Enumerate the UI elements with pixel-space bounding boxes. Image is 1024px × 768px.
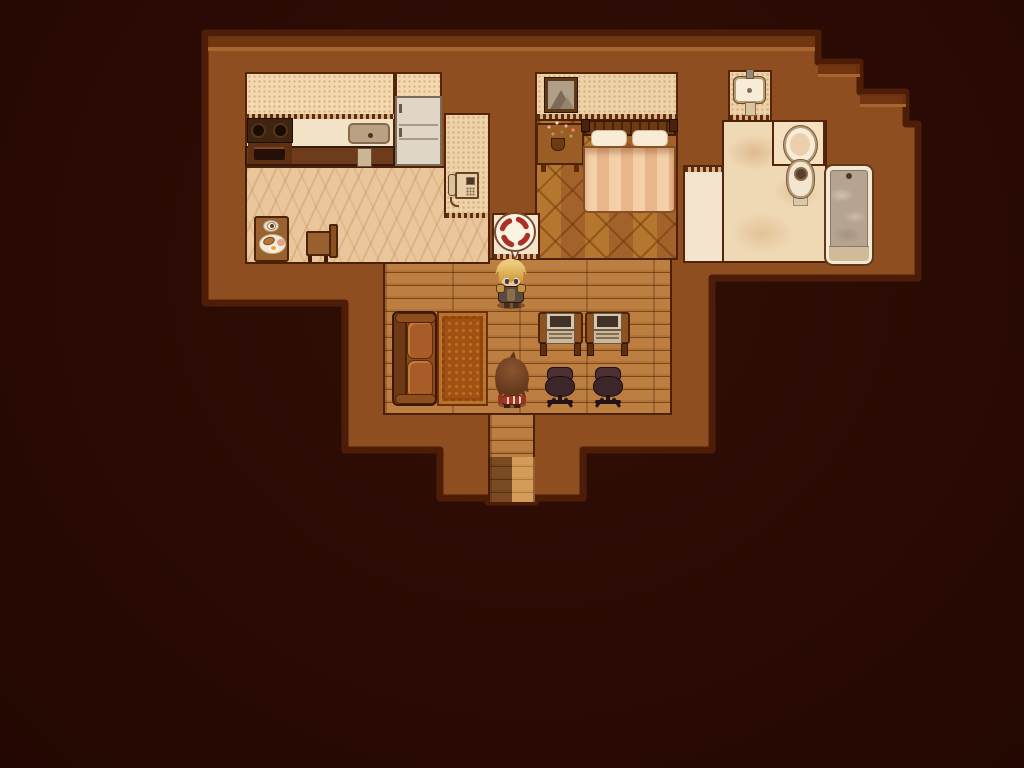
office-chair-right[interactable]: [591, 367, 625, 408]
toilet[interactable]: [787, 160, 814, 198]
hand-towel: [357, 148, 372, 167]
faucet-icon: [746, 69, 754, 79]
chair-leg: [308, 256, 312, 262]
nightstand-leg: [574, 165, 579, 172]
kid-arm: [521, 395, 526, 404]
toilet-base: [793, 197, 808, 206]
office-chair-left[interactable]: [543, 367, 577, 408]
laptop-screen: [593, 313, 622, 330]
intercom-phone[interactable]: [448, 172, 479, 208]
desk-leg: [621, 343, 628, 356]
hero-eye: [505, 278, 509, 284]
chair-seat: [545, 376, 575, 397]
fridge-seam: [399, 138, 438, 140]
toilet-lid-inner: [790, 133, 810, 156]
couch-cushion: [407, 360, 433, 398]
game-viewport: [0, 0, 1024, 768]
sink-pedestal: [745, 102, 756, 116]
hero-eye: [514, 278, 518, 284]
oven-door: [254, 147, 285, 160]
breakfast-table[interactable]: [254, 216, 289, 262]
couch-armrest: [395, 313, 436, 323]
couch[interactable]: [392, 311, 437, 406]
phone-screen: [466, 177, 475, 185]
coffee: [270, 224, 274, 228]
drain-icon: [368, 133, 373, 138]
flower-vase: [551, 138, 565, 151]
tub-faucet-icon: [846, 173, 852, 179]
laptop-right[interactable]: [593, 313, 622, 344]
bathtub[interactable]: [826, 166, 872, 264]
phone-cord: [450, 197, 459, 207]
kid-foot: [504, 404, 510, 408]
keyboard-keys-icon: [596, 333, 619, 341]
hero-shoulder-pad: [517, 284, 526, 293]
hallway-trim: [446, 213, 488, 218]
laptop-screen-panel: [597, 316, 618, 327]
tub-ledge: [829, 246, 869, 261]
corridor-shadow: [488, 457, 512, 502]
hero-shoulder-pad: [496, 284, 505, 293]
coffee-cup: [267, 222, 276, 230]
bed-post: [581, 119, 590, 132]
ornate-rug: [437, 311, 488, 406]
stove[interactable]: [247, 118, 293, 165]
character-kid[interactable]: [495, 351, 529, 408]
kitchen-sink[interactable]: [348, 123, 390, 144]
fried-egg: [269, 244, 279, 252]
desk-leg: [587, 343, 594, 356]
pillow: [591, 130, 627, 147]
kitchen-backsplash: [245, 72, 395, 118]
phone-handset: [448, 174, 456, 196]
fridge-seam: [399, 124, 438, 126]
breakfast-plate: [259, 234, 286, 254]
kitchen-backsplash-right: [395, 72, 442, 98]
kid-hair: [495, 357, 529, 398]
bathroom-sink[interactable]: [734, 77, 765, 103]
mountain-picture: [545, 78, 577, 112]
drain-icon: [747, 88, 752, 93]
hero-hair: [495, 259, 527, 285]
bathroom-ivory-tile: [683, 165, 724, 263]
laptop-keyboard: [593, 330, 622, 344]
bed-post: [669, 119, 678, 132]
phone-body: [455, 172, 479, 199]
chair-leg: [324, 256, 328, 262]
chair-base: [547, 400, 573, 404]
chair-seat: [593, 376, 623, 397]
hero-chest-plate: [507, 289, 515, 301]
double-bed[interactable]: [583, 120, 676, 213]
couch-armrest: [395, 394, 436, 404]
stove-top: [247, 118, 293, 143]
egg-yolk: [271, 246, 276, 250]
corridor-doorlight: [512, 457, 535, 502]
ivory-tile-trim: [685, 167, 722, 172]
toilet-bowl-opening: [794, 167, 808, 181]
bed-blanket: [583, 146, 676, 213]
refrigerator[interactable]: [395, 96, 442, 166]
character-shadow: [497, 302, 525, 309]
kid-foot: [514, 404, 520, 408]
couch-backrest: [394, 313, 407, 404]
laptop-screen: [546, 313, 575, 330]
chair-backrest: [329, 224, 338, 258]
anger-emote-balloon: [492, 211, 538, 261]
laptop-screen-panel: [550, 316, 571, 327]
pillow: [632, 130, 668, 147]
burner-icon: [273, 123, 288, 138]
burner-icon: [251, 123, 266, 138]
kitchen-chair[interactable]: [306, 224, 338, 262]
desk-leg: [574, 343, 581, 356]
couch-cushion: [407, 321, 433, 359]
fridge-handle: [399, 128, 402, 137]
nightstand-leg: [541, 165, 546, 172]
keyboard-keys-icon: [549, 333, 572, 341]
character-hero[interactable]: [494, 259, 528, 308]
laptop-left[interactable]: [546, 313, 575, 344]
phone-keypad-icon: [466, 187, 475, 196]
desk-leg: [540, 343, 547, 356]
kid-arm: [498, 395, 503, 404]
toilet-lid: [784, 126, 817, 164]
hero-leg: [513, 303, 519, 308]
chair-base: [595, 400, 621, 404]
hero-leg: [504, 303, 510, 308]
fridge-handle: [399, 104, 402, 113]
saucer: [263, 220, 279, 232]
laptop-keyboard: [546, 330, 575, 344]
stove-front: [248, 143, 292, 164]
chair-seat: [306, 231, 331, 256]
